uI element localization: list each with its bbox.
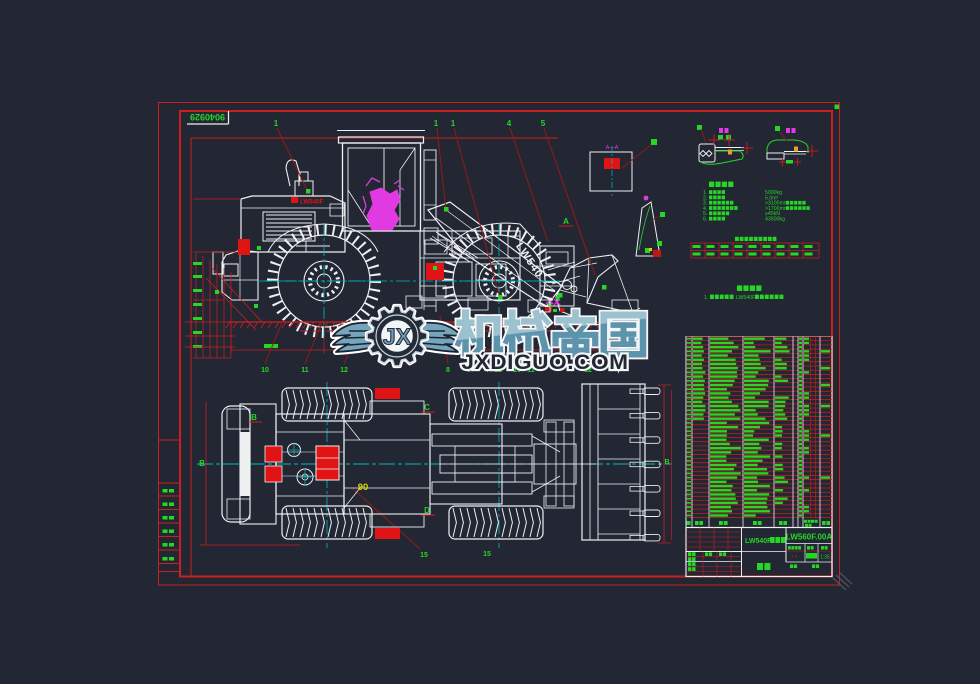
svg-text:LW540F: LW540F [736,295,755,301]
svg-text:LW560F.00A: LW560F.00A [786,533,832,542]
svg-text:B: B [199,459,205,468]
svg-text:JXDIGUO.COM: JXDIGUO.COM [461,350,628,374]
svg-text:C: C [424,403,430,412]
svg-text:8: 8 [446,367,450,374]
svg-text:12: 12 [340,367,348,374]
svg-text:LW540F: LW540F [300,199,324,206]
svg-text:11: 11 [301,367,309,374]
svg-text:B: B [251,413,257,422]
svg-text:4: 4 [507,119,512,128]
svg-text:1: 1 [434,119,439,128]
svg-text:5: 5 [541,119,546,128]
svg-text:JX: JX [383,324,412,350]
svg-text:A—A: A—A [606,145,619,151]
svg-text:10: 10 [261,367,269,374]
svg-text:LW540F: LW540F [745,538,772,545]
svg-text:1: 1 [451,119,456,128]
svg-text:9040929: 9040929 [190,112,225,122]
svg-text:90: 90 [358,482,369,493]
svg-text:× ×: × × [791,554,798,559]
svg-text:15: 15 [483,551,491,558]
svg-text:1:35: 1:35 [820,555,830,561]
svg-text:43500kg: 43500kg [765,217,785,223]
svg-text:D: D [424,506,430,515]
svg-text:B: B [664,459,669,466]
svg-text:A: A [563,217,569,226]
svg-text:1.: 1. [704,295,708,301]
svg-text:1: 1 [274,119,279,128]
svg-text:15: 15 [420,552,428,559]
svg-text:6.: 6. [703,217,707,223]
